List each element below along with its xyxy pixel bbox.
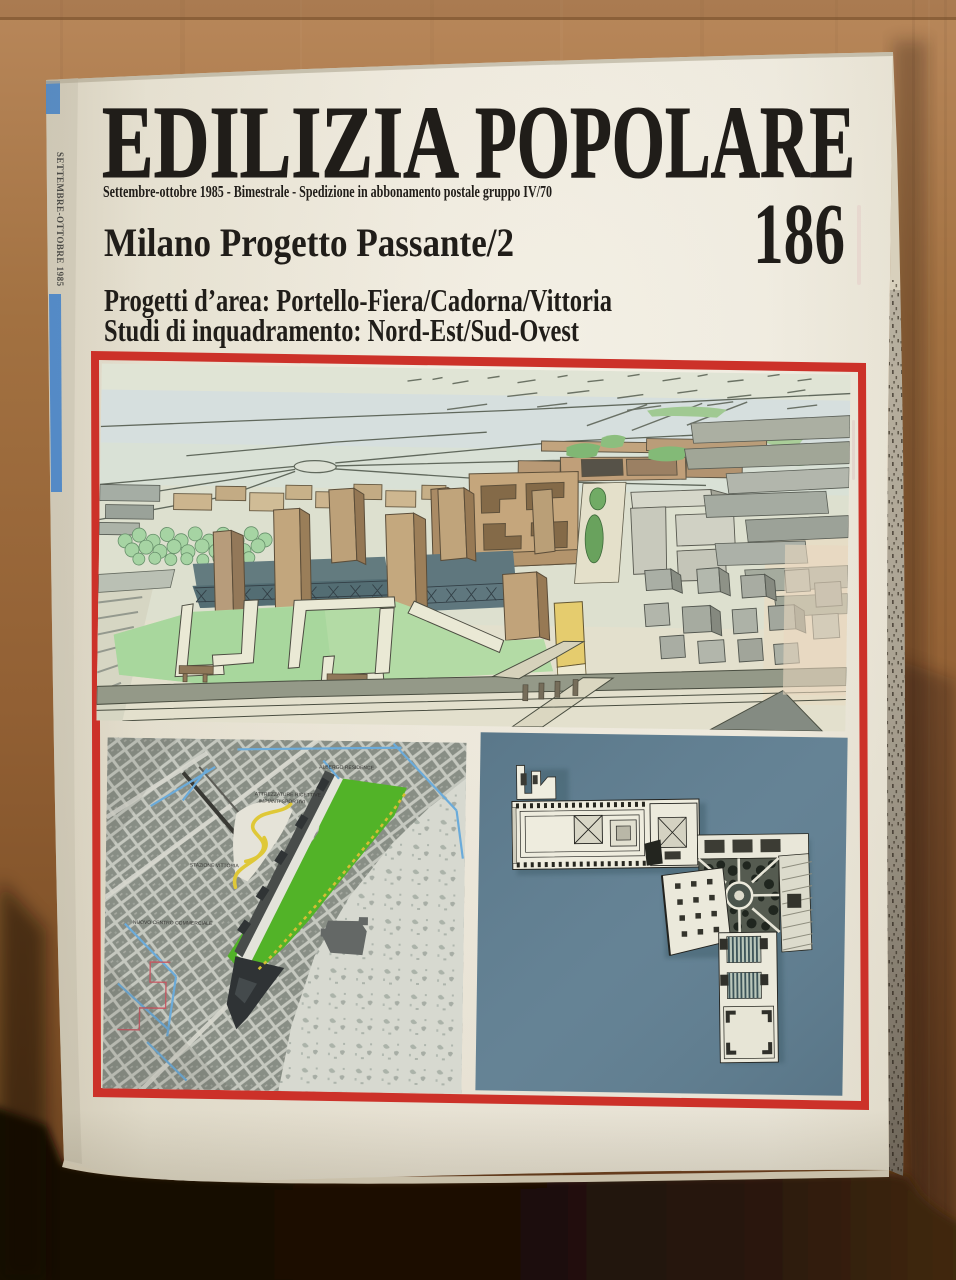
svg-text:Settembre-ottobre 1985 - Bimes: Settembre-ottobre 1985 - Bimestrale - Sp… xyxy=(103,182,552,201)
svg-text:Studi di inquadramento: Nord-E: Studi di inquadramento: Nord-Est/Sud-Ove… xyxy=(104,312,579,348)
svg-text:186: 186 xyxy=(753,185,845,282)
svg-text:Milano Progetto Passante/2: Milano Progetto Passante/2 xyxy=(104,220,514,265)
